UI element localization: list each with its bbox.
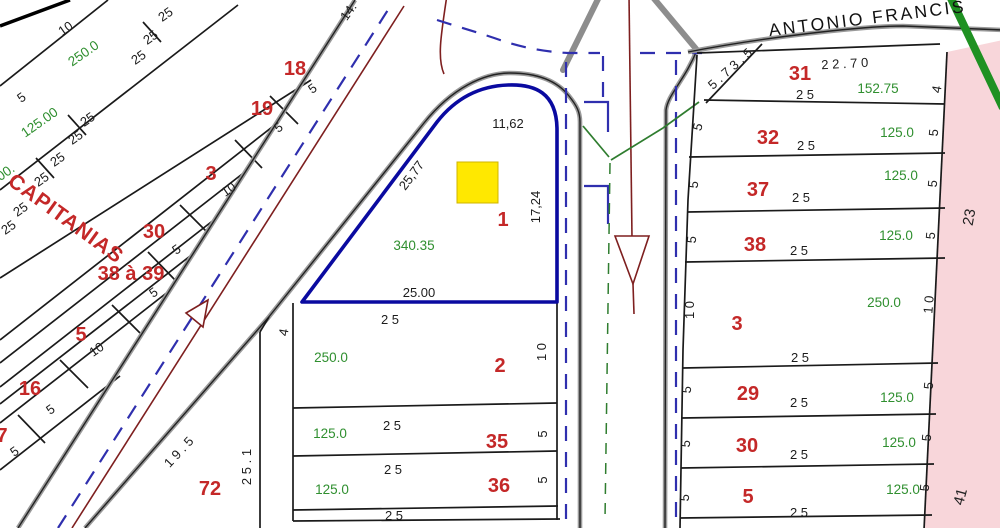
area-label: 250.0 — [867, 295, 901, 310]
dimension-label: 2 5 — [796, 87, 814, 102]
dimension-label: 2 2 . 7 0 — [821, 55, 869, 72]
dimension-label: 5 — [926, 128, 942, 137]
dimension-label: 1 0 — [920, 295, 937, 314]
lot1-number-label: 1 — [497, 209, 508, 231]
dimension-label: 5 — [678, 439, 694, 448]
dimension-label: 2 5 — [790, 505, 808, 520]
lot-number-label: 5 — [742, 486, 753, 508]
lot1-area-label: 340.35 — [393, 238, 434, 253]
lot-number-label: 7 — [0, 425, 8, 447]
dimension-label: 5 — [535, 476, 550, 483]
dimension-label: 5 — [917, 483, 933, 492]
dimension-label: 5 — [921, 381, 937, 390]
lot-number-label: 5 — [75, 324, 86, 346]
dimension-label: 5 — [535, 430, 550, 437]
lot-number-label: 35 — [486, 431, 508, 453]
dimension-label: 1 0 — [682, 301, 697, 319]
dimension-label: 2 5 — [797, 138, 815, 153]
lot-number-label: 2 — [494, 355, 505, 377]
street-flow-tail — [633, 284, 634, 314]
adjacent-plan-label: 23 — [960, 208, 980, 227]
lot1-dim-top: 11,62 — [492, 116, 524, 131]
lot-number-label: 38 — [744, 234, 766, 256]
lot-number-label: 31 — [789, 63, 811, 85]
lot-number-label: 29 — [737, 383, 759, 405]
dimension-label: 2 5 — [792, 190, 810, 205]
lot-number-label: 36 — [488, 475, 510, 497]
dimension-label: 5 — [923, 231, 939, 240]
area-label: 250.0 — [314, 350, 348, 365]
lot-number-label: 30 — [736, 435, 758, 457]
lot-number-label: 3 — [205, 163, 216, 185]
cadastral-map-page: CAPITANIAS ANTONIO FRANCIS 11,62 25,77 1… — [0, 0, 1000, 528]
area-label: 125.0 — [886, 482, 920, 497]
area-label: 125.0 — [315, 482, 349, 497]
area-label: 152.75 — [857, 81, 898, 96]
dimension-label: 5 — [686, 180, 702, 189]
dimension-label: 1 0 — [534, 343, 549, 361]
lot-number-label: 19 — [251, 98, 273, 120]
lot1-dim-bottom: 25.00 — [403, 285, 436, 300]
dimension-label: 2 5 — [791, 350, 809, 365]
dimension-label: 2 5 — [381, 312, 399, 327]
area-label: 125.0 — [880, 125, 914, 140]
lot-number-label: 3 — [731, 313, 742, 335]
dimension-label: 5 — [679, 385, 695, 394]
dimension-label: 2 5 — [384, 462, 402, 477]
lot-number-label: 16 — [19, 378, 41, 400]
cadastral-map: CAPITANIAS ANTONIO FRANCIS 11,62 25,77 1… — [0, 0, 1000, 528]
dimension-label: 2 5 — [790, 243, 808, 258]
area-label: 125.0 — [884, 168, 918, 183]
lot-number-label: 18 — [284, 58, 306, 80]
dimension-label: 5 — [919, 433, 935, 442]
dimension-label: 2 5 — [790, 447, 808, 462]
highlight-marker — [457, 162, 498, 203]
lot-number-label: 38 à 39 — [98, 263, 165, 285]
dimension-label: 2 5 . 1 — [239, 449, 254, 485]
dimension-label: 5 — [684, 235, 700, 244]
lot-number-label: 37 — [747, 179, 769, 201]
dimension-label: 2 5 — [385, 508, 403, 523]
area-label: 125.0 — [880, 390, 914, 405]
dimension-label: 5 — [925, 179, 941, 188]
dimension-label: 2 5 — [790, 395, 808, 410]
lot1-dim-right: 17,24 — [528, 191, 543, 224]
lot-number-label: 32 — [757, 127, 779, 149]
dimension-label: 5 — [677, 493, 693, 502]
lot-number-label: 72 — [199, 478, 221, 500]
dimension-label: 2 5 — [383, 418, 401, 433]
area-label: 125.0 — [313, 426, 347, 441]
area-label: 125.0 — [882, 435, 916, 450]
area-label: 125.0 — [879, 228, 913, 243]
lot-number-label: 30 — [143, 221, 165, 243]
